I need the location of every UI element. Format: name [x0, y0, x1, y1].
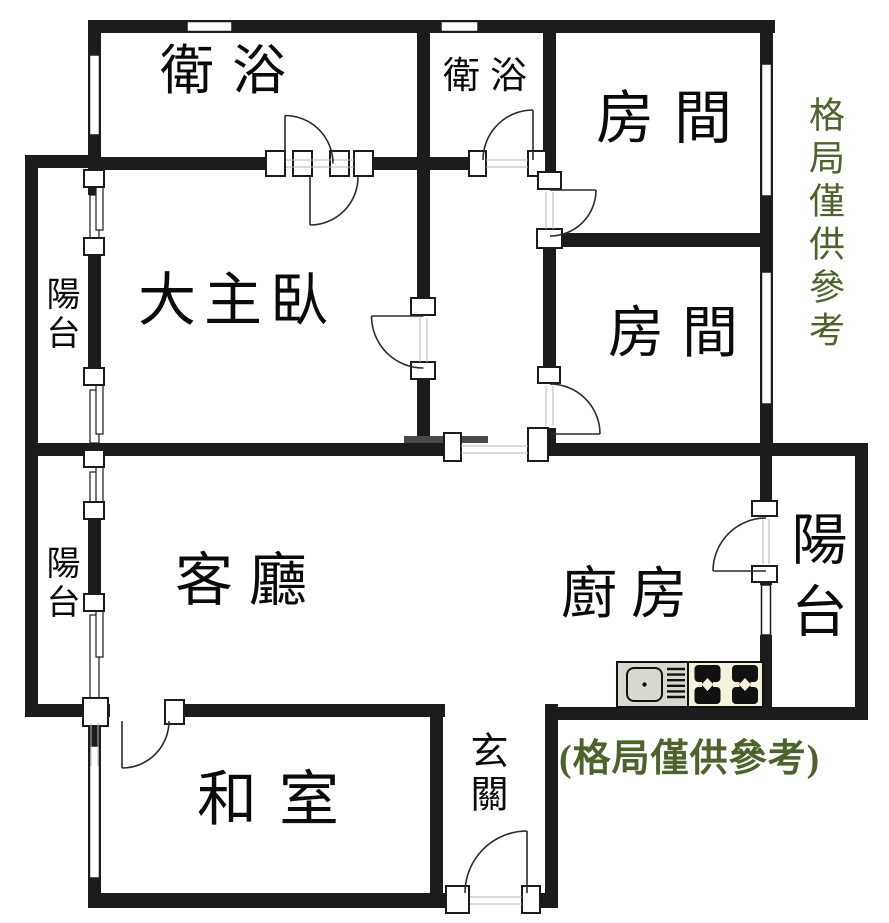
sliding-leaf-icon	[96, 384, 103, 434]
door-jamb-icon	[354, 151, 373, 176]
sliding-leaf-icon	[96, 611, 103, 657]
window-icon	[90, 55, 100, 135]
floor-plan: 衛浴 衛浴 房間 房間 大主臥 客廳 廚房 和室 陽台 陽台 陽台 玄關 格局僅…	[0, 0, 889, 923]
bottom-note: (格局僅供參考)	[559, 740, 820, 778]
door-jamb-icon	[538, 172, 561, 189]
room-label-tatami-room: 和室	[197, 770, 361, 830]
room-label-bathroom-main: 衛浴	[160, 44, 304, 98]
window-bracket-icon	[84, 450, 104, 467]
wall-rooms-divider	[543, 233, 765, 247]
room-label-master-bedroom: 大主臥	[138, 272, 336, 330]
door-swing-icon	[465, 831, 527, 893]
wall-living-bottom	[168, 704, 445, 717]
door-jamb-icon	[752, 501, 777, 516]
window-icon	[762, 64, 772, 196]
window-bracket-icon	[84, 594, 104, 611]
door-jamb-icon	[528, 428, 548, 461]
door-swing-icon	[483, 110, 533, 160]
wall-rooms-west	[543, 236, 556, 384]
door-jamb-icon	[165, 700, 184, 724]
room-label-bedroom-top: 房間	[596, 90, 752, 148]
window-bracket-icon	[84, 238, 104, 255]
wall-bath1-bottom	[88, 157, 270, 170]
wall-kitchen-balcony	[760, 456, 772, 503]
wall-outer-left	[25, 155, 38, 717]
door-jamb-icon	[444, 433, 461, 461]
room-label-bedroom-mid: 房間	[608, 306, 756, 362]
wall-center-vertical	[417, 20, 430, 303]
room-label-balcony-right: 陽台	[786, 510, 842, 654]
kitchen-counter-icon	[617, 662, 763, 707]
door-jamb-icon	[538, 367, 560, 383]
wall-living-top	[528, 443, 868, 456]
wall-bottom	[88, 893, 455, 908]
window-icon	[187, 22, 232, 32]
room-label-balcony-upper-left: 陽台	[42, 276, 76, 354]
window-icon	[762, 272, 772, 404]
room-label-living-room: 客廳	[175, 552, 323, 610]
door-swing-icon	[372, 316, 424, 368]
room-label-bathroom-small: 衛浴	[443, 58, 537, 95]
sliding-leaf-icon	[96, 466, 103, 506]
door-jamb-icon	[411, 362, 435, 379]
wall-entry-east	[545, 704, 558, 908]
room-label-balcony-lower-left: 陽台	[42, 545, 76, 623]
wall-balcony-divider	[88, 518, 101, 602]
side-note-vertical: 格局僅供參考	[806, 96, 842, 354]
sliding-leaf-icon	[96, 184, 103, 230]
wall-balcony-divider	[88, 253, 101, 375]
door-swing-icon	[550, 384, 600, 434]
door-jamb-icon	[537, 229, 562, 248]
door-jamb-icon	[522, 886, 540, 913]
room-label-entryway: 玄關	[466, 731, 504, 817]
door-jamb-icon	[293, 151, 312, 176]
wall-kitchen-bottom	[548, 707, 868, 720]
wall-bath2-bottom	[430, 157, 472, 170]
window-bracket-icon	[84, 368, 104, 385]
door-swing-icon	[310, 177, 358, 225]
window-icon	[762, 585, 771, 635]
wall-outer-right-bottom	[855, 443, 868, 718]
door-jamb-icon	[266, 151, 285, 176]
door-jamb-icon	[752, 566, 777, 582]
door-jamb-icon	[83, 698, 108, 726]
door-swing-icon	[713, 518, 766, 571]
wall-tatami-east	[430, 704, 443, 906]
window-icon	[441, 22, 478, 32]
door-jamb-icon	[411, 298, 435, 315]
window-bracket-icon	[84, 170, 104, 187]
window-bracket-icon	[84, 502, 104, 519]
door-swing-icon	[122, 721, 169, 768]
room-label-kitchen: 廚房	[561, 567, 701, 623]
floor-plan-drawing	[0, 0, 889, 923]
